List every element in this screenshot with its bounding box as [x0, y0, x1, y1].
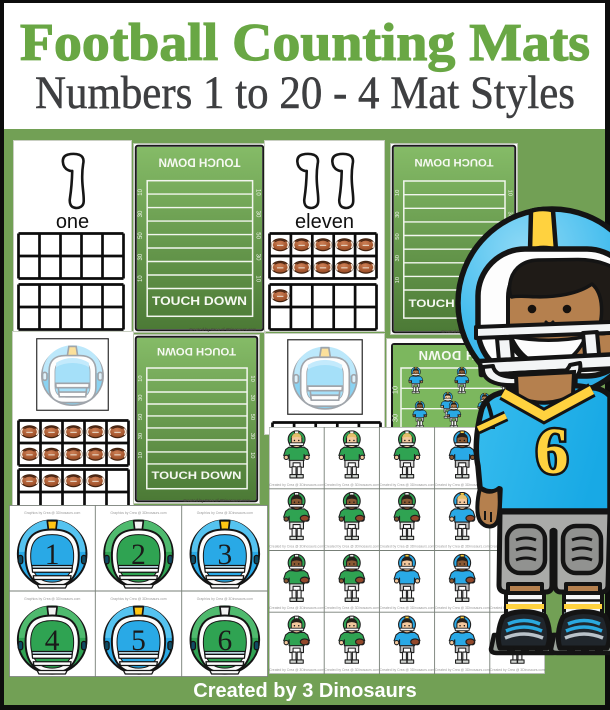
- svg-text:10: 10: [138, 452, 144, 458]
- svg-text:30: 30: [138, 433, 144, 439]
- svg-text:TOUCH DOWN: TOUCH DOWN: [152, 296, 247, 308]
- svg-text:Football Counting Mats: Football Counting Mats: [20, 14, 590, 72]
- svg-text:Created by Crea @ 3Dinosaurs.c: Created by Crea @ 3Dinosaurs.com: [324, 483, 379, 487]
- svg-text:Graphics by Crea @ 3Dinosaurs.: Graphics by Crea @ 3Dinosaurs.com: [197, 511, 253, 515]
- svg-text:50: 50: [395, 233, 401, 239]
- svg-text:30: 30: [138, 253, 144, 260]
- svg-text:10: 10: [395, 277, 401, 283]
- svg-text:30: 30: [395, 255, 401, 261]
- svg-text:10: 10: [255, 189, 261, 196]
- svg-text:50: 50: [138, 414, 144, 420]
- svg-text:10: 10: [395, 190, 401, 196]
- svg-text:TOUCH DOWN: TOUCH DOWN: [414, 156, 493, 168]
- svg-text:50: 50: [138, 232, 144, 239]
- svg-text:Created by Crea @ 3Dinosaurs.c: Created by Crea @ 3Dinosaurs.com: [324, 545, 379, 549]
- svg-text:30: 30: [255, 254, 261, 261]
- svg-text:Created by Crea @ 3Dinosaurs.c: Created by Crea @ 3Dinosaurs.com: [269, 668, 324, 672]
- svg-text:30: 30: [395, 211, 401, 217]
- svg-text:30: 30: [138, 395, 144, 401]
- svg-text:10: 10: [138, 375, 144, 381]
- svg-text:50: 50: [249, 414, 255, 420]
- svg-text:Created by Crea @ 3Dinosaurs.c: Created by Crea @ 3Dinosaurs.com: [324, 668, 379, 672]
- svg-text:Numbers 1 to 20 - 4 Mat Styles: Numbers 1 to 20 - 4 Mat Styles: [35, 67, 575, 119]
- svg-text:Graphics by Crea @ 3Dinosaurs.: Graphics by Crea @ 3Dinosaurs.com: [24, 597, 80, 601]
- svg-text:TOUCH DOWN: TOUCH DOWN: [159, 156, 241, 168]
- svg-text:10: 10: [249, 375, 255, 381]
- svg-text:Created by Crea of 3Dinosaurs.: Created by Crea of 3Dinosaurs.com: [183, 498, 250, 503]
- svg-text:30: 30: [249, 395, 255, 401]
- svg-text:30: 30: [249, 433, 255, 439]
- svg-text:Created by Crea @ 3Dinosaurs.c: Created by Crea @ 3Dinosaurs.com: [269, 483, 324, 487]
- svg-text:Graphics by Crea @ 3Dinosaurs.: Graphics by Crea @ 3Dinosaurs.com: [110, 511, 166, 515]
- svg-text:6: 6: [536, 415, 569, 488]
- svg-text:30: 30: [391, 414, 400, 422]
- svg-text:30: 30: [138, 210, 144, 217]
- svg-text:10: 10: [138, 275, 144, 282]
- svg-text:10: 10: [138, 188, 144, 195]
- svg-text:TOUCH DOWN: TOUCH DOWN: [157, 345, 236, 357]
- svg-text:Created by Crea of 3Dinosaurs.: Created by Crea of 3Dinosaurs.com: [189, 327, 256, 332]
- svg-text:Graphics by Crea @ 3Dinosaurs.: Graphics by Crea @ 3Dinosaurs.com: [197, 597, 253, 601]
- svg-text:Created by Crea @ 3Dinosaurs.c: Created by Crea @ 3Dinosaurs.com: [269, 606, 324, 610]
- svg-text:Created by Crea @ 3Dinosaurs.c: Created by Crea @ 3Dinosaurs.com: [324, 606, 379, 610]
- svg-text:Graphics by Crea @ 3Dinosaurs.: Graphics by Crea @ 3Dinosaurs.com: [24, 511, 80, 515]
- svg-text:50: 50: [255, 232, 261, 239]
- svg-text:30: 30: [255, 211, 261, 218]
- svg-text:10: 10: [507, 190, 513, 196]
- svg-text:Created by Crea @ 3Dinosaurs.c: Created by Crea @ 3Dinosaurs.com: [269, 545, 324, 549]
- svg-text:10: 10: [391, 386, 400, 394]
- svg-text:10: 10: [249, 452, 255, 458]
- svg-text:Graphics by Crea @ 3Dinosaurs.: Graphics by Crea @ 3Dinosaurs.com: [110, 597, 166, 601]
- svg-text:TOUCH DOWN: TOUCH DOWN: [152, 470, 242, 482]
- svg-text:10: 10: [255, 275, 261, 282]
- svg-text:Created by 3 Dinosaurs: Created by 3 Dinosaurs: [193, 680, 416, 702]
